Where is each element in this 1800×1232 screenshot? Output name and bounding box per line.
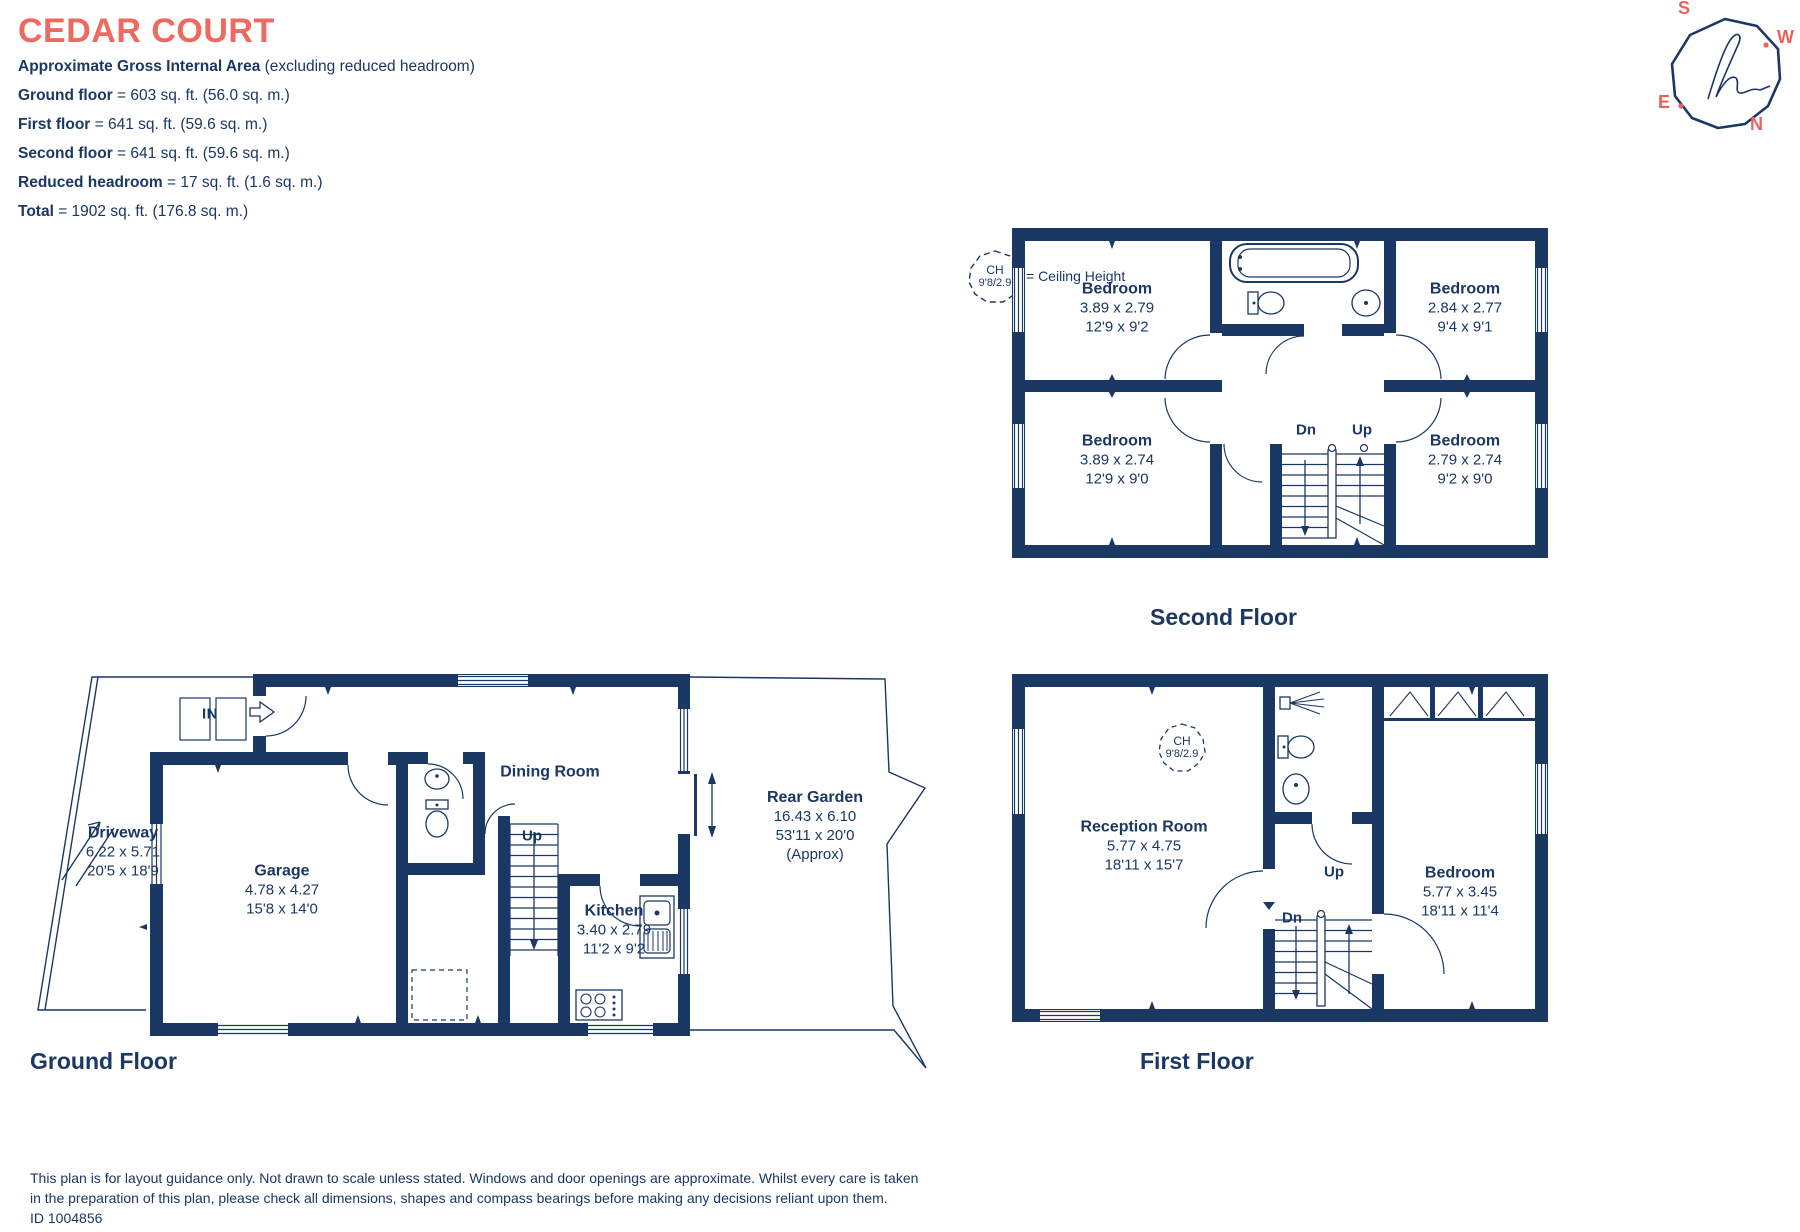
room-label-reception: Reception Room 5.77 x 4.75 18'11 x 15'7 [1080,818,1207,875]
room-label-kitchen: Kitchen 3.40 x 2.79 11'2 x 9'2 [577,902,651,959]
page-title: CEDAR COURT [18,12,275,51]
door-arcs [266,696,640,926]
area-summary: Approximate Gross Internal Area (excludi… [18,52,475,226]
ground-floor-plan [28,674,933,1074]
room-label-bedroom: Bedroom 3.89 x 2.79 12'9 x 9'2 [1080,280,1154,337]
toilet-icon [426,800,448,837]
area-line: Ground floor = 603 sq. ft. (56.0 sq. m.) [18,81,475,110]
stairs-up-label: Up [1324,864,1344,881]
room-label-garden: Rear Garden 16.43 x 6.10 53'11 x 20'0 (A… [767,788,863,864]
toilet-icon [1278,736,1314,758]
stairs-dn-label: Dn [1296,422,1316,439]
disclaimer-line: in the preparation of this plan, please … [30,1188,918,1208]
room-label-bedroom: Bedroom 3.89 x 2.74 12'9 x 9'0 [1080,432,1154,489]
ceiling-height-symbol-text: CH 9'8/2.9 [979,264,1012,290]
area-line: Second floor = 641 sq. ft. (59.6 sq. m.) [18,139,475,168]
room-label-driveway: Driveway 6.22 x 5.71 20'5 x 18'9 [86,824,160,881]
bathtub-icon [1230,244,1358,282]
sink-icon [425,769,449,789]
second-floor-plan [1012,228,1548,560]
sink-icon [1352,290,1380,316]
compass-icon: S W E N [1650,2,1800,142]
room-label-bedroom: Bedroom 5.77 x 3.45 18'11 x 11'4 [1421,864,1499,921]
wall-ticks [1109,241,1470,545]
shower-icon [1280,692,1324,714]
room-label-garage: Garage 4.78 x 4.27 15'8 x 14'0 [245,862,319,919]
room-label-bedroom: Bedroom 2.79 x 2.74 9'2 x 9'0 [1428,432,1502,489]
garden-door-arrow-icon [708,772,716,838]
compass-n: N [1750,114,1763,135]
wardrobe-icon [1390,692,1524,716]
door-arcs [1165,335,1441,482]
area-line: Reduced headroom = 17 sq. ft. (1.6 sq. m… [18,168,475,197]
sink-icon [1283,774,1309,804]
garden-boundary [690,677,926,1068]
compass-s: S [1678,0,1690,19]
compass-rose [1650,2,1800,142]
stairs-up-label: Up [522,828,542,845]
ground-floor-label: Ground Floor [30,1048,177,1075]
area-heading: Approximate Gross Internal Area (excludi… [18,52,475,81]
disclaimer-line: This plan is for layout guidance only. N… [30,1168,918,1188]
ceiling-height-symbol-text: CH 9'8/2.9 [1166,735,1199,761]
compass-h-glyph [1708,34,1770,99]
first-floor-label: First Floor [1140,1048,1254,1075]
floorplan-page: CEDAR COURT Approximate Gross Internal A… [0,0,1800,1232]
toilet-icon [1248,292,1284,314]
area-line: First floor = 641 sq. ft. (59.6 sq. m.) [18,110,475,139]
second-floor-label: Second Floor [1150,604,1297,631]
stairs-icon [1282,445,1384,546]
compass-w: W [1777,27,1794,48]
understairs-storage [412,970,467,1020]
in-arrow-icon [250,702,274,722]
room-label-bedroom: Bedroom 2.84 x 2.77 9'4 x 9'1 [1428,280,1502,337]
in-label: IN [202,706,218,723]
hob-icon [576,990,622,1020]
area-line: Total = 1902 sq. ft. (176.8 sq. m.) [18,197,475,226]
compass-e: E [1658,92,1670,113]
disclaimer: This plan is for layout guidance only. N… [30,1168,918,1228]
stairs-up-label: Up [1352,422,1372,439]
plan-id: ID 1004856 [30,1208,918,1228]
stairs-dn-label: Dn [1282,910,1302,927]
room-label-dining: Dining Room [500,763,600,782]
